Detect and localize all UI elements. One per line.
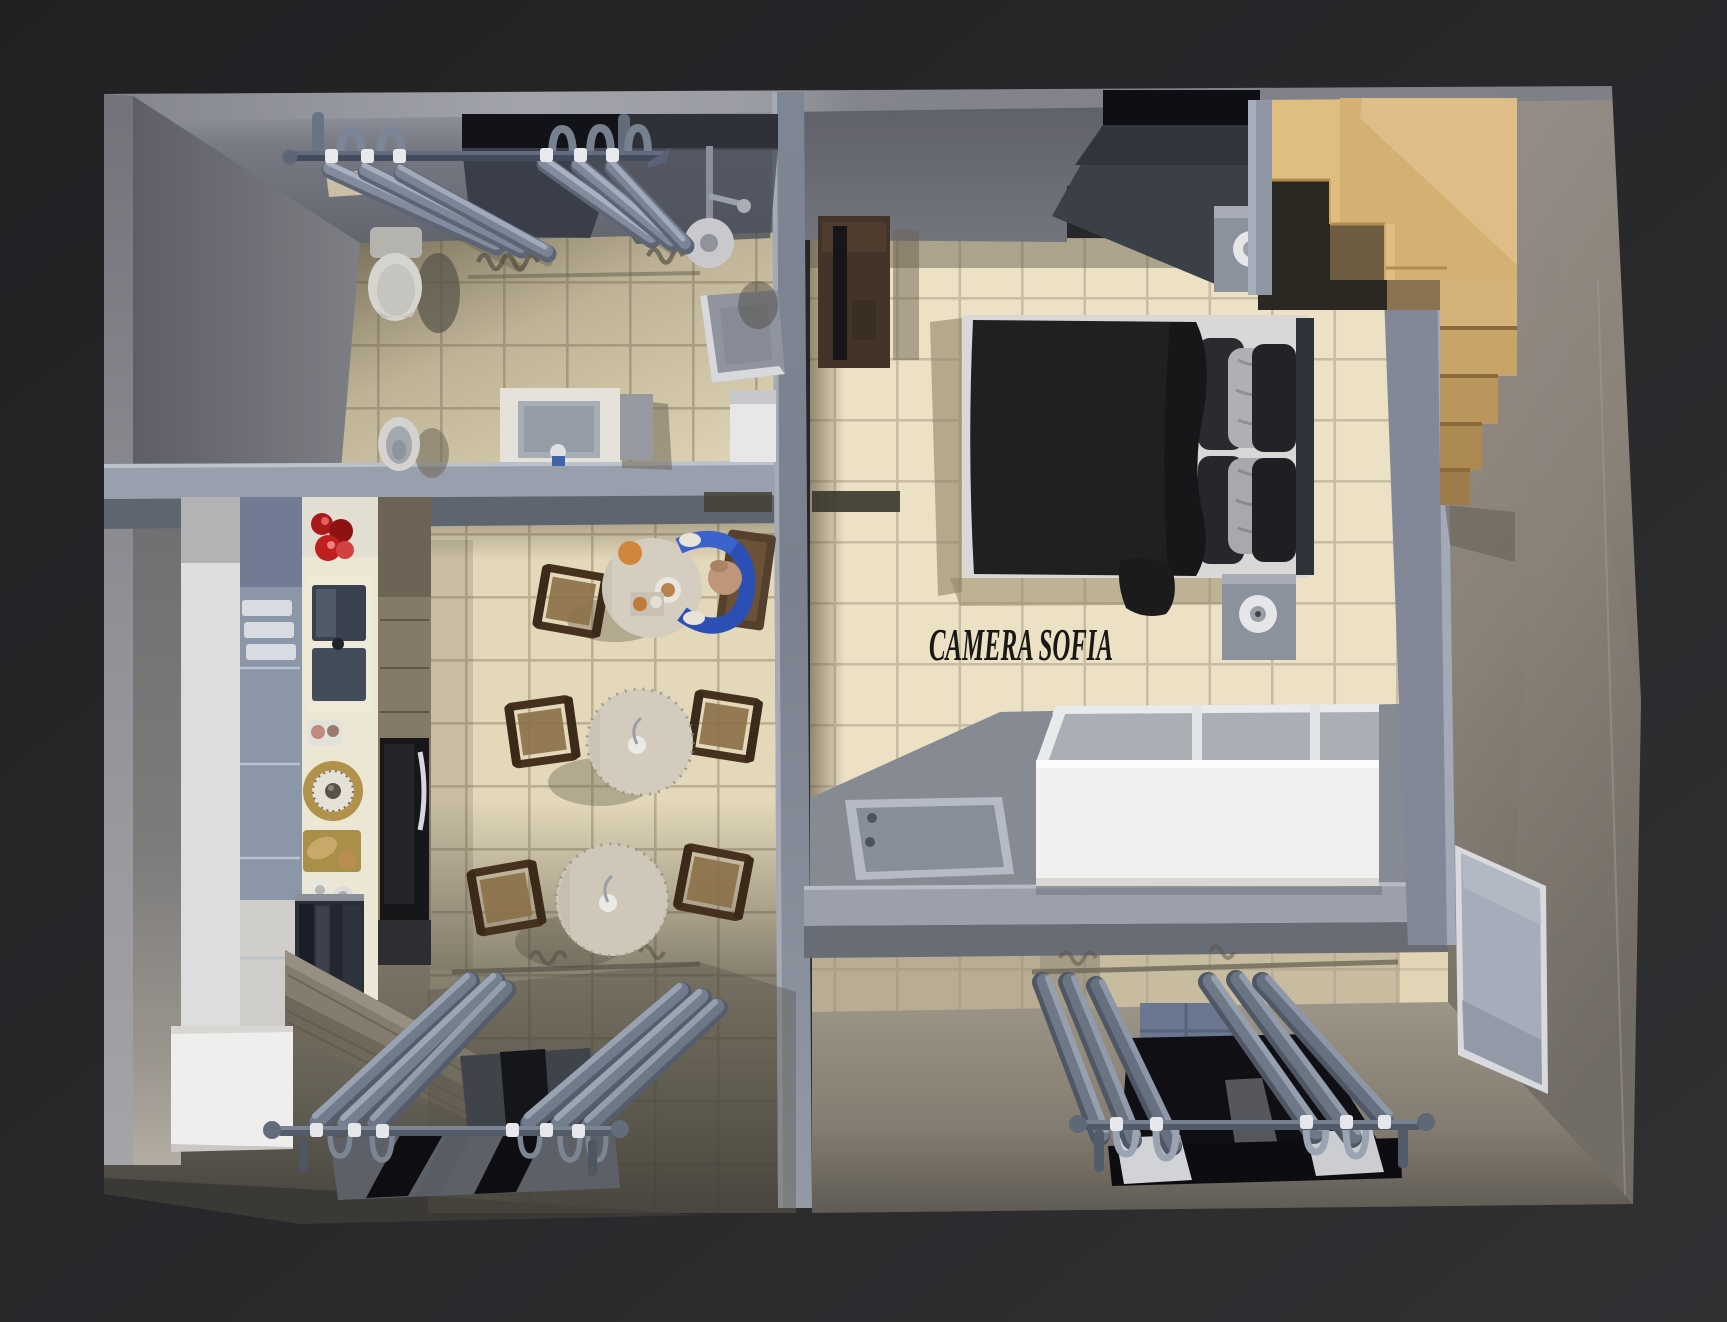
svg-text:CAMERA SOFIA: CAMERA SOFIA bbox=[929, 619, 1113, 670]
